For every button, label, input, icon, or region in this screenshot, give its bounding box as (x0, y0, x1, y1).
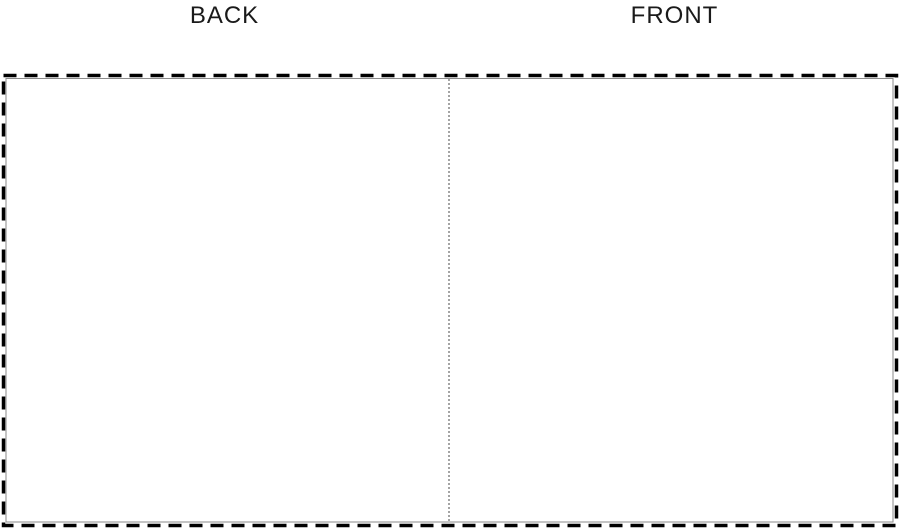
back-design-panel (7, 80, 447, 520)
front-design-panel (451, 80, 891, 520)
